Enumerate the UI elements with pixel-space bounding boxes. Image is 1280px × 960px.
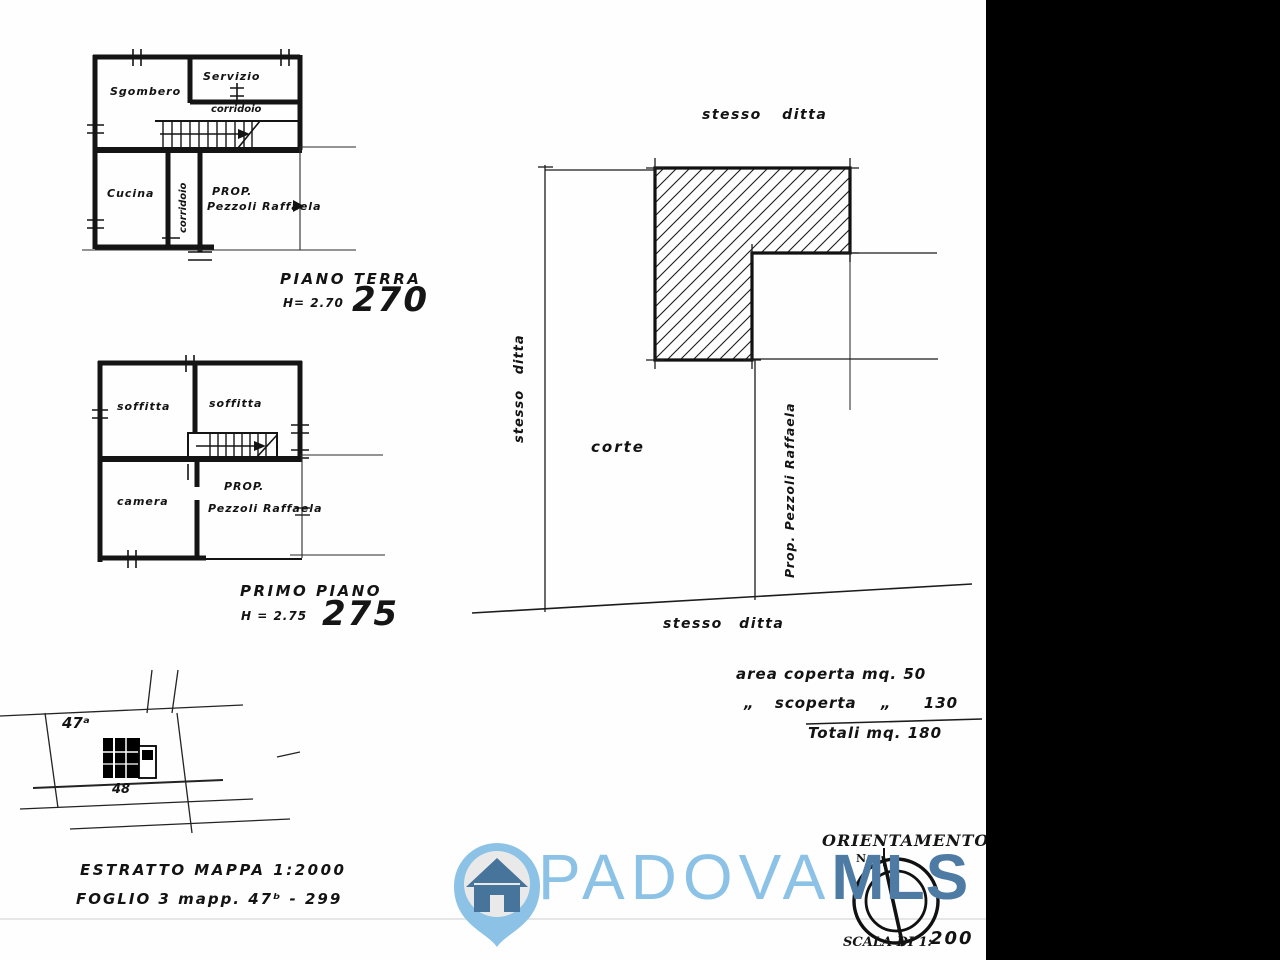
first-floor-height: H = 2.75	[241, 610, 307, 623]
room-label-cucina: Cucina	[107, 188, 154, 200]
floorplan-drawing	[0, 0, 986, 960]
site-label-left: stesso ditta	[513, 334, 527, 443]
room-label-camera: camera	[117, 496, 169, 508]
parcel-label-48: 48	[112, 783, 130, 797]
scanned-floorplan-page: Sgombero Servizio corridoio corridoio Cu…	[0, 0, 1280, 960]
padovamls-logo-text: PADOVAMLS	[538, 845, 969, 909]
scale-value: 200	[930, 930, 974, 949]
scan-black-margin	[986, 0, 1280, 960]
ground-floor-height-big: 270	[352, 283, 429, 319]
area-row-covered: area coperta mq. 50	[736, 667, 926, 683]
room-label-corridoio-v: corridoio	[179, 183, 190, 233]
room-label-soffitta-right: soffitta	[209, 398, 262, 410]
owner-label-ground-1: PROP.	[212, 186, 252, 198]
site-label-top: stesso ditta	[702, 108, 827, 123]
site-label-bottom: stesso ditta	[663, 617, 784, 632]
area-uncovered-text: scoperta	[775, 694, 857, 712]
room-label-soffitta-left: soffitta	[117, 401, 170, 413]
logo-text-mls: MLS	[831, 841, 969, 913]
ditto-mark: „	[881, 694, 892, 712]
site-label-corte: corte	[591, 440, 645, 456]
room-label-corridoio-h: corridoio	[211, 105, 261, 116]
site-plan	[472, 158, 982, 724]
scale-label: SCALA DI 1:	[843, 936, 932, 950]
owner-label-ground-2: Pezzoli Raffaela	[207, 201, 322, 213]
hatched-building-footprint	[655, 168, 850, 360]
stairs-ground	[155, 121, 298, 148]
first-floor-height-big: 275	[322, 597, 399, 633]
site-label-owner: Prop. Pezzoli Raffaela	[783, 402, 796, 578]
area-row-uncovered: „ scoperta „ 130	[744, 696, 958, 712]
map-caption-line1: ESTRATTO MAPPA 1:2000	[80, 863, 346, 879]
room-label-sgombero: Sgombero	[110, 86, 181, 98]
ground-floor-height: H= 2.70	[283, 297, 344, 310]
room-label-servizio: Servizio	[203, 71, 260, 83]
owner-label-first-2: Pezzoli Raffaela	[208, 503, 323, 515]
map-caption-line2: FOGLIO 3 mapp. 47ᵇ - 299	[76, 892, 342, 908]
area-uncovered-value: 130	[924, 694, 958, 712]
logo-text-padova: PADOVA	[538, 841, 831, 913]
map-building-black	[103, 738, 140, 778]
map-extract	[0, 670, 300, 833]
owner-label-first-1: PROP.	[224, 481, 264, 493]
ditto-mark: „	[744, 694, 755, 712]
parcel-label-47: 47ᵃ	[62, 716, 90, 732]
first-floor-plan	[92, 355, 385, 568]
area-row-total: Totali mq. 180	[808, 726, 942, 742]
